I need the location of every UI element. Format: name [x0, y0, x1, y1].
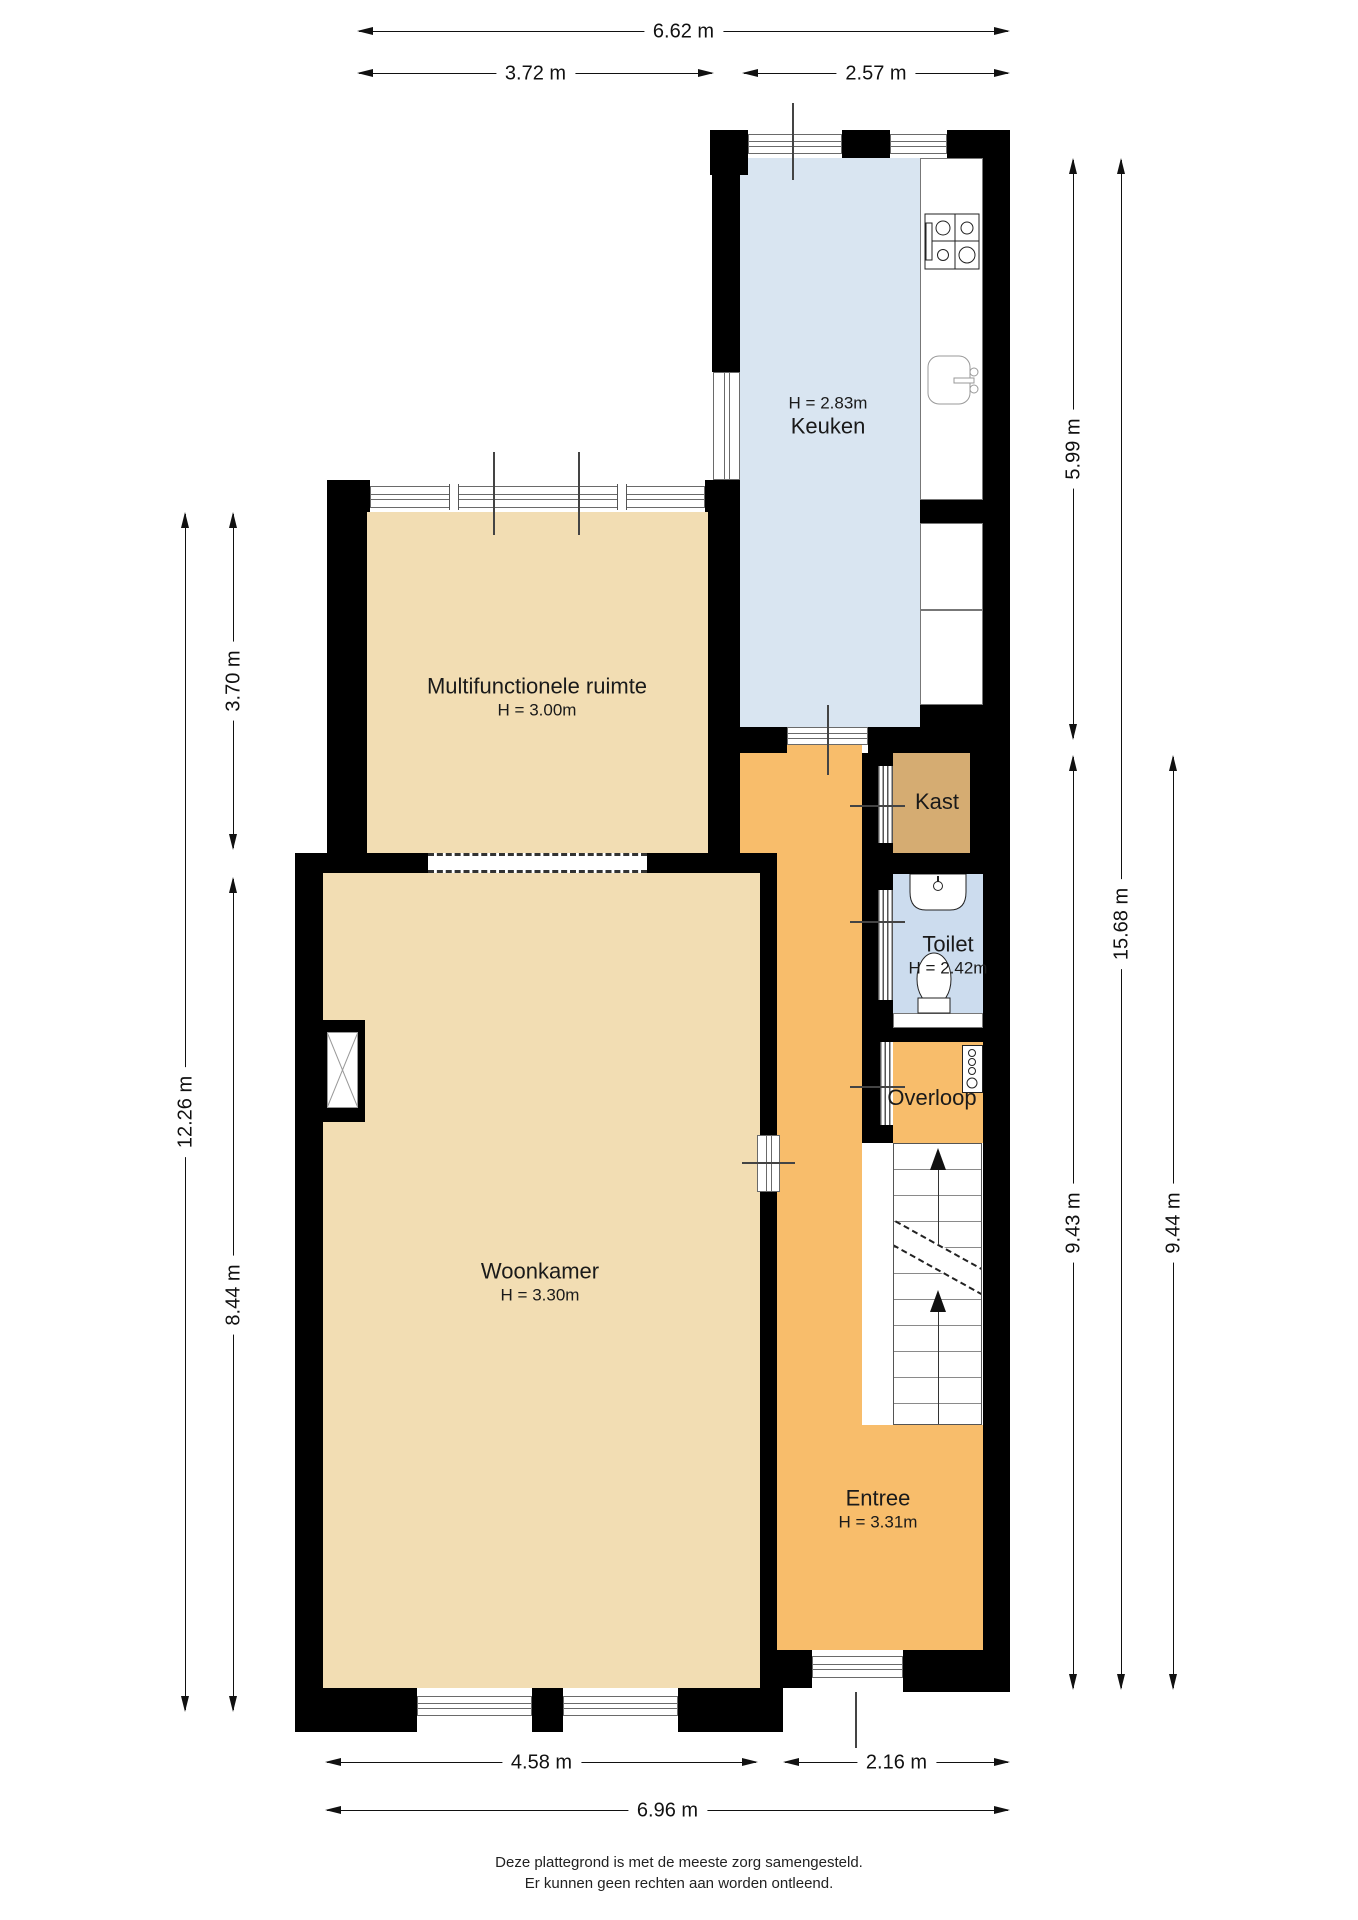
wall-multifunctionele-top-right [705, 480, 740, 512]
door-toilet [878, 890, 893, 1000]
arrow-left-icon [783, 1758, 799, 1766]
wall-front-left [295, 1688, 417, 1732]
wall-below-appliances [920, 705, 983, 753]
floor-entree-corridor [777, 853, 862, 1425]
floor-entree-top [740, 745, 862, 853]
arrow-down-icon [1069, 1674, 1077, 1690]
dim-bottom-total: 6.96 m [325, 1806, 1010, 1815]
disclaimer: Deze plattegrond is met de meeste zorg s… [0, 1852, 1358, 1894]
disclaimer-line-2: Er kunnen geen rechten aan worden ontlee… [0, 1873, 1358, 1894]
dim-right-hall-inner-value: 9.43 m [1062, 1183, 1085, 1262]
dim-right-total-value: 15.68 m [1110, 879, 1133, 969]
dim-left-total-value: 12.26 m [174, 1067, 197, 1157]
arrow-up-icon [1117, 158, 1125, 174]
window-woonkamer-front-right [563, 1696, 678, 1716]
tick-woonkamer-door [742, 1162, 795, 1164]
wall-keuken-top-mid [842, 130, 890, 158]
washbasin-icon [908, 874, 968, 912]
room-label-entree: Entree H = 3.31m [839, 1486, 918, 1533]
dim-top-left-value: 3.72 m [496, 62, 575, 85]
arrow-right-icon [698, 69, 714, 77]
disclaimer-line-1: Deze plattegrond is met de meeste zorg s… [0, 1852, 1358, 1873]
window-keuken-left [713, 372, 740, 480]
sink-icon [926, 352, 980, 408]
room-label-keuken: H = 2.83m Keuken [789, 393, 868, 440]
arrow-up-icon [229, 877, 237, 893]
wall-multifunctionele-left [327, 480, 367, 873]
arrow-up-icon [1169, 755, 1177, 771]
toilet-height-label: H = 2.42m [909, 958, 988, 979]
kast-name-label: Kast [915, 789, 959, 815]
room-label-overloop: Overloop [887, 1085, 976, 1111]
wall-toilet-overloop-divider [862, 1028, 983, 1042]
window-multifunctionele-top [370, 486, 705, 508]
window-woonkamer-entree [757, 1135, 780, 1192]
tick-keuken-top-window [792, 103, 794, 180]
arrow-right-icon [742, 1758, 758, 1766]
tick-kast-door [850, 805, 905, 807]
wall-woonkamer-entree-divider [760, 873, 777, 1688]
keuken-name-label: Keuken [789, 414, 868, 440]
woonkamer-name-label: Woonkamer [481, 1259, 599, 1285]
entree-height-label: H = 3.31m [839, 1512, 918, 1533]
tick-multifunctionele-window-left [493, 452, 495, 535]
multifunctionele-name-label: Multifunctionele ruimte [427, 674, 647, 700]
arrow-right-icon [994, 1806, 1010, 1814]
kitchen-appliance-bottom [920, 610, 983, 705]
chimney-flue-icon [327, 1032, 358, 1108]
wall-front-right [678, 1688, 783, 1732]
window-woonkamer-front-left [417, 1696, 532, 1716]
dim-right-hall-outer: 9.44 m [1169, 755, 1178, 1690]
floor-entree-hall [777, 1425, 983, 1650]
arrow-right-icon [994, 1758, 1010, 1766]
woonkamer-height-label: H = 3.30m [481, 1285, 599, 1306]
wall-keuken-left-upper [712, 130, 740, 372]
wall-keuken-bottom-left [740, 727, 787, 753]
arrow-right-icon [994, 27, 1010, 35]
entree-name-label: Entree [839, 1486, 918, 1512]
dim-bottom-living: 4.58 m [325, 1758, 758, 1767]
wall-under-counter [920, 500, 983, 523]
wall-right-exterior [983, 130, 1010, 1692]
arrow-left-icon [357, 69, 373, 77]
dim-left-lower: 8.44 m [229, 877, 238, 1712]
front-door [812, 1656, 903, 1678]
staircase [893, 1143, 982, 1425]
wall-kast-toilet-divider [868, 853, 983, 874]
floor-plan: H = 2.83m Keuken Multifunctionele ruimte… [0, 0, 1358, 1920]
arrow-left-icon [357, 27, 373, 35]
dim-top-left: 3.72 m [357, 69, 714, 78]
kitchen-counter [920, 158, 983, 500]
arrow-down-icon [229, 834, 237, 850]
dim-left-lower-value: 8.44 m [222, 1255, 245, 1334]
opening-multifunctionele-woonkamer [428, 853, 647, 873]
dim-top-total-value: 6.62 m [644, 20, 723, 43]
window-keuken-top-right [890, 134, 947, 154]
dim-bottom-hall-value: 2.16 m [857, 1751, 936, 1774]
arrow-left-icon [742, 69, 758, 77]
multifunctionele-height-label: H = 3.00m [427, 700, 647, 721]
overloop-name-label: Overloop [887, 1085, 976, 1111]
wall-kast-right [970, 753, 983, 853]
window-keuken-top-left [748, 134, 842, 154]
wall-front-pier [532, 1688, 563, 1732]
dim-bottom-hall: 2.16 m [783, 1758, 1010, 1767]
stairs-up-arrow-bottom [930, 1290, 946, 1312]
dim-right-kitchen-value: 5.99 m [1062, 409, 1085, 488]
wall-entree-front-left [775, 1650, 812, 1688]
wall-keuken-bottom-right [868, 727, 920, 753]
dim-top-total: 6.62 m [357, 27, 1010, 36]
toilet-platform [893, 1013, 983, 1028]
arrow-left-icon [325, 1806, 341, 1814]
room-label-toilet: Toilet H = 2.42m [909, 932, 988, 979]
tick-keuken-passage [827, 705, 829, 775]
room-label-woonkamer: Woonkamer H = 3.30m [481, 1259, 599, 1306]
arrow-down-icon [229, 1696, 237, 1712]
arrow-up-icon [1069, 158, 1077, 174]
dim-left-upper: 3.70 m [229, 512, 238, 850]
dim-right-hall-inner: 9.43 m [1069, 755, 1078, 1690]
stairs-walkline-bottom [938, 1312, 940, 1425]
keuken-height-label: H = 2.83m [789, 393, 868, 414]
dim-left-upper-value: 3.70 m [222, 641, 245, 720]
dim-top-right: 2.57 m [742, 69, 1010, 78]
stove-icon [924, 213, 980, 270]
window-mullion-left [449, 484, 459, 510]
arrow-down-icon [1117, 1674, 1125, 1690]
tick-toilet-door [850, 921, 905, 923]
wall-entree-front-right [903, 1650, 983, 1692]
dim-right-kitchen: 5.99 m [1069, 158, 1078, 740]
arrow-left-icon [325, 1758, 341, 1766]
arrow-up-icon [1069, 755, 1077, 771]
arrow-down-icon [181, 1696, 189, 1712]
door-overloop [880, 1042, 893, 1125]
dim-bottom-living-value: 4.58 m [502, 1751, 581, 1774]
arrow-right-icon [994, 69, 1010, 77]
stairs-up-arrow-top [930, 1148, 946, 1170]
arrow-up-icon [229, 512, 237, 528]
dim-right-total: 15.68 m [1117, 158, 1126, 1690]
room-label-multifunctionele-ruimte: Multifunctionele ruimte H = 3.00m [427, 674, 647, 721]
wall-keuken-multifunctionele-divider [708, 512, 740, 853]
arrow-down-icon [1169, 1674, 1177, 1690]
dim-right-hall-outer-value: 9.44 m [1162, 1183, 1185, 1262]
kitchen-appliance-top [920, 523, 983, 610]
tick-multifunctionele-window-right [578, 452, 580, 535]
tick-front-door [855, 1692, 857, 1748]
dim-bottom-total-value: 6.96 m [628, 1799, 707, 1822]
wall-multifunctionele-bottom-right [647, 853, 777, 873]
dim-top-right-value: 2.57 m [836, 62, 915, 85]
room-label-kast: Kast [915, 789, 959, 815]
dim-left-total: 12.26 m [181, 512, 190, 1712]
arrow-up-icon [181, 512, 189, 528]
wall-woonkamer-left [295, 853, 323, 1732]
window-mullion-right [617, 484, 627, 510]
toilet-name-label: Toilet [909, 932, 988, 958]
arrow-down-icon [1069, 724, 1077, 740]
